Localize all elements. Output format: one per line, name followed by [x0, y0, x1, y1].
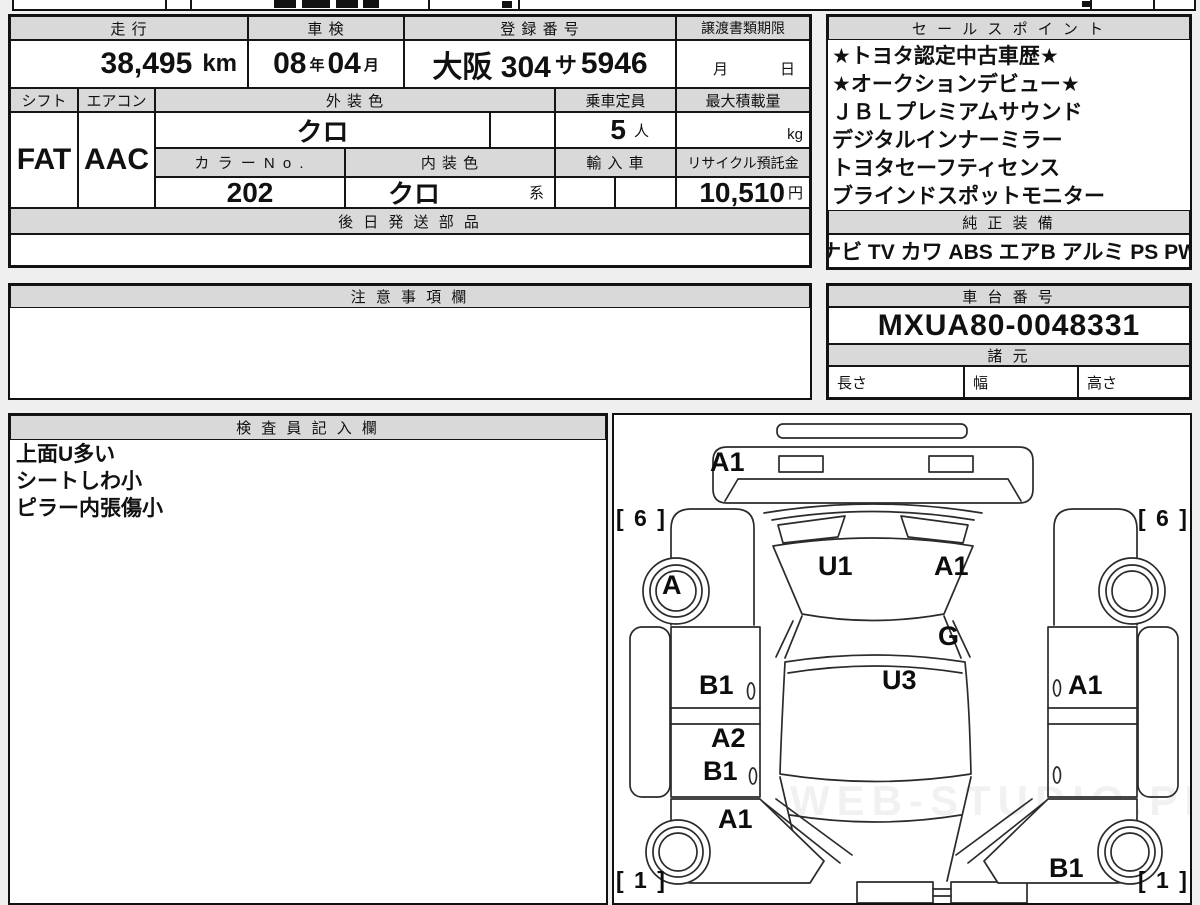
import-value-right — [615, 177, 676, 208]
sill-right — [1138, 627, 1178, 797]
sales-points-list: ★トヨタ認定中古車歴★ ★オークションデビュー★ ＪＢＬプレミアムサウンド デジ… — [832, 43, 1188, 211]
damage-label-hood-u1: U1 — [818, 551, 853, 582]
later-parts-value — [10, 234, 810, 266]
inspection-month: 04 — [328, 47, 361, 81]
tire-depth-front-left: [ 6 ] — [616, 505, 667, 532]
capacity-number: 5 — [610, 114, 626, 146]
transfer-deadline-header: 譲渡書類期限 — [676, 16, 810, 40]
exterior-color-value: クロ — [155, 112, 490, 148]
transfer-month-label: 月 — [713, 58, 728, 79]
color-no-value: 202 — [155, 177, 345, 208]
inspection-value: 08 年 04 月 — [248, 40, 404, 88]
interior-color-suffix: 系 — [529, 182, 544, 203]
registration-number: 5946 — [581, 47, 648, 81]
import-header: 輸 入 車 — [555, 148, 676, 177]
registration-kana: サ — [555, 48, 577, 80]
inspection-header: 車 検 — [248, 16, 404, 40]
shift-header: シフト — [10, 88, 78, 112]
caution-notes-header: 注 意 事 項 欄 — [10, 285, 810, 308]
capacity-unit: 人 — [634, 120, 649, 141]
inspector-note: 上面U多い — [16, 441, 596, 468]
exterior-color-header: 外 装 色 — [155, 88, 555, 112]
registration-prefix: 大阪 304 — [432, 42, 550, 86]
sales-point: ★トヨタ認定中古車歴★ — [832, 43, 1188, 71]
inspection-year-unit: 年 — [309, 54, 324, 75]
top-row-divider — [12, 0, 14, 9]
top-row-divider — [165, 0, 167, 9]
spec-height: 高さ — [1078, 366, 1190, 398]
clipped-text-fragment — [1082, 1, 1092, 7]
spec-length: 長さ — [828, 366, 964, 398]
clipped-text-fragment — [502, 1, 512, 8]
inspector-note: ピラー内張傷小 — [16, 495, 596, 522]
capacity-value: 5 人 — [555, 112, 676, 148]
later-parts-header: 後 日 発 送 部 品 — [10, 208, 810, 234]
inspector-notes-header: 検 査 員 記 入 欄 — [10, 415, 606, 440]
mileage-unit: km — [202, 50, 237, 78]
inspection-month-unit: 月 — [364, 54, 379, 75]
equipment-value: ナビ TV カワ ABS エアB アルミ PS PW — [828, 234, 1190, 268]
registration-value: 大阪 304 サ 5946 — [404, 40, 676, 88]
aircon-header: エアコン — [78, 88, 155, 112]
interior-color-value: クロ 系 — [345, 177, 555, 208]
recycle-amount: 10,510 — [699, 177, 785, 208]
clipped-text-fragment — [274, 0, 296, 8]
sales-points-header: セ ー ル ス ポ イ ン ト — [828, 16, 1190, 40]
clipped-text-fragment — [302, 0, 330, 8]
inspector-notes-list: 上面U多い シートしわ小 ピラー内張傷小 — [16, 441, 596, 522]
sill-left — [630, 627, 670, 797]
front-wheel-right — [1099, 558, 1165, 624]
damage-label-hood-a1: A1 — [934, 551, 969, 582]
tire-depth-rear-right: [ 1 ] — [1138, 867, 1189, 894]
damage-label-quarter-left-a1: A1 — [718, 804, 753, 835]
interior-color-header: 内 装 色 — [345, 148, 555, 177]
bumper-plate-left — [779, 456, 823, 472]
clipped-text-fragment — [363, 0, 379, 8]
inspector-note: シートしわ小 — [16, 468, 596, 495]
transfer-deadline-value: 月 日 — [676, 40, 810, 88]
mileage-header: 走 行 — [10, 16, 248, 40]
tire-depth-front-right: [ 6 ] — [1138, 505, 1189, 532]
specs-header: 諸 元 — [828, 344, 1190, 366]
doors-right — [1048, 627, 1137, 797]
bumper-plate-right — [929, 456, 973, 472]
sales-point: トヨタセーフティセンス — [832, 155, 1188, 183]
spec-width: 幅 — [964, 366, 1078, 398]
damage-label-roof-u3: U3 — [882, 665, 917, 696]
recycle-value: 10,510 円 — [676, 177, 810, 208]
shift-value: FAT — [10, 112, 78, 208]
damage-label-door-left-b1-lower: B1 — [703, 756, 738, 787]
spoiler-bar — [777, 424, 967, 438]
top-row-divider — [518, 0, 520, 9]
door-handle — [748, 683, 755, 699]
chassis-header: 車 台 番 号 — [828, 285, 1190, 307]
max-load-unit: kg — [787, 126, 803, 143]
damage-label-door-left-a2: A2 — [711, 723, 746, 754]
recycle-unit: 円 — [788, 182, 803, 203]
mileage-value: 38,495 km — [10, 40, 248, 88]
tire-depth-rear-left: [ 1 ] — [616, 867, 667, 894]
top-row-divider — [1153, 0, 1155, 9]
clipped-text-fragment — [336, 0, 358, 8]
max-load-header: 最大積載量 — [676, 88, 810, 112]
capacity-header: 乗車定員 — [555, 88, 676, 112]
aircon-value: AAC — [78, 112, 155, 208]
color-no-header: カ ラ ー N o . — [155, 148, 345, 177]
registration-header: 登 録 番 号 — [404, 16, 676, 40]
damage-label-front-wheel: A — [662, 570, 682, 601]
top-row-divider — [428, 0, 430, 9]
interior-color-name: クロ — [388, 177, 440, 208]
damage-label-front-bumper: A1 — [710, 447, 745, 478]
auction-sheet: 走 行 車 検 登 録 番 号 譲渡書類期限 38,495 km 08 年 04… — [0, 0, 1200, 900]
door-handle — [1054, 767, 1061, 783]
front-bumper — [713, 447, 1033, 503]
damage-label-quarter-right-b1: B1 — [1049, 853, 1084, 884]
sales-point: ブラインドスポットモニター — [832, 183, 1188, 211]
transfer-day-label: 日 — [780, 58, 795, 79]
mileage-number: 38,495 — [101, 47, 193, 81]
import-value-left — [555, 177, 615, 208]
chassis-value: MXUA80-0048331 — [828, 307, 1190, 344]
damage-label-door-left-b1: B1 — [699, 670, 734, 701]
damage-diagram-box: WEB-STUDIO.PRO — [612, 413, 1192, 905]
top-row-divider — [190, 0, 192, 9]
sales-point: ★オークションデビュー★ — [832, 71, 1188, 99]
max-load-value: kg — [676, 112, 810, 148]
door-handle — [1054, 680, 1061, 696]
sales-point: デジタルインナーミラー — [832, 127, 1188, 155]
door-handle — [750, 768, 757, 784]
roof — [780, 655, 971, 782]
sales-point: ＪＢＬプレミアムサウンド — [832, 99, 1188, 127]
car-outline-diagram — [614, 415, 1190, 903]
inspection-year: 08 — [273, 47, 306, 81]
recycle-header: リサイクル預託金 — [676, 148, 810, 177]
exterior-color-extra-cell — [490, 112, 555, 148]
top-row-divider — [1194, 0, 1196, 9]
damage-label-door-right-a1: A1 — [1068, 670, 1103, 701]
damage-label-cowl-g: G — [938, 621, 959, 652]
equipment-header: 純 正 装 備 — [828, 210, 1190, 234]
